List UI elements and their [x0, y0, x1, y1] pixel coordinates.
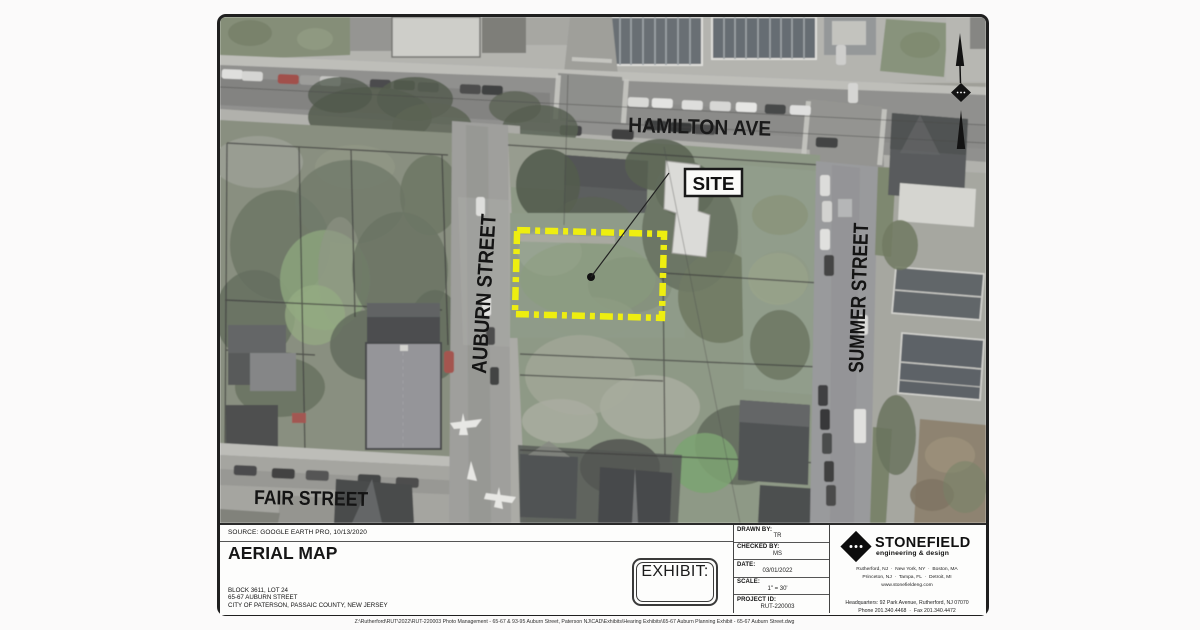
svg-text:SITE: SITE — [693, 174, 735, 194]
svg-text:HAMILTON AVE: HAMILTON AVE — [628, 114, 772, 141]
svg-text:FAIR STREET: FAIR STREET — [254, 487, 368, 511]
